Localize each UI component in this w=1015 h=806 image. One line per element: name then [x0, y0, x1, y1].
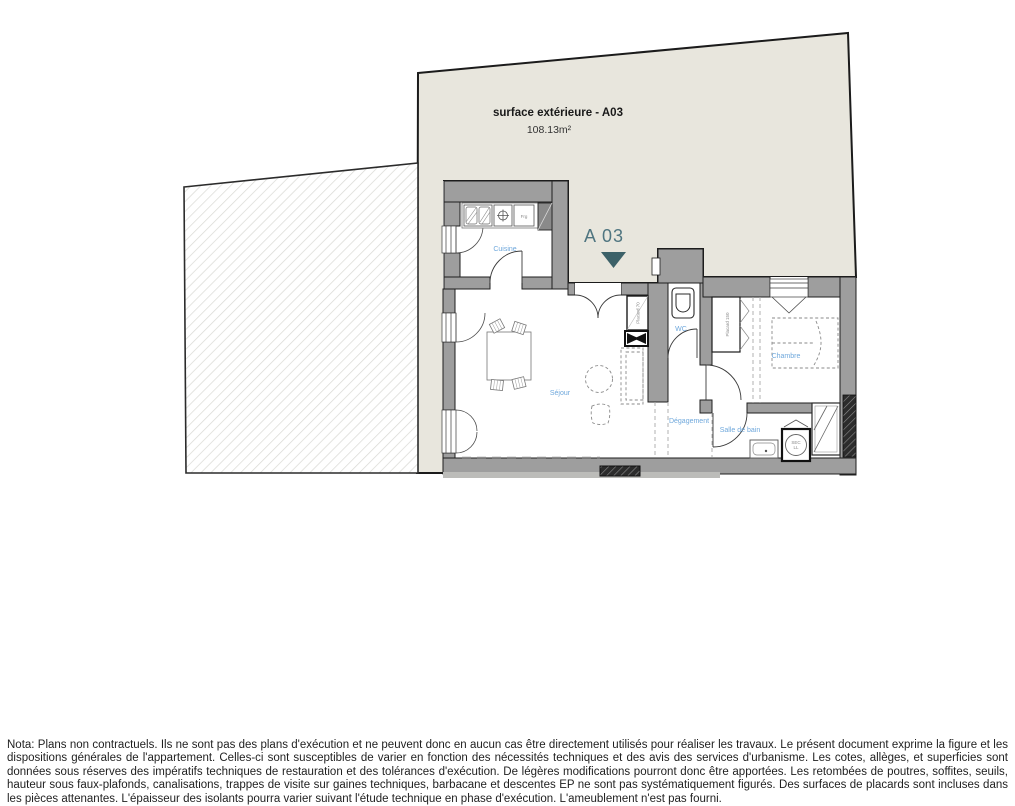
room-label-chambre: Chambre — [772, 353, 801, 360]
unit-label: A 03 — [584, 226, 624, 246]
washer-label-bottom: LL — [793, 445, 799, 450]
room-label-wc: WC — [675, 326, 687, 333]
shower — [812, 403, 840, 455]
entry-closet-label: Placard 70 — [636, 302, 641, 324]
hatched-parcel — [184, 163, 418, 473]
exterior-surface-value: 108.13m² — [527, 124, 572, 136]
party-wall-hatch — [843, 395, 856, 457]
bathroom-sink — [750, 440, 778, 458]
room-label-degagement: Dégagement — [669, 418, 709, 425]
room-label-sejour: Séjour — [550, 390, 571, 397]
exterior-surface-title: surface extérieure - A03 — [493, 107, 623, 119]
stove — [494, 205, 512, 226]
technical-shaft — [625, 331, 648, 346]
room-label-cuisine: Cuisine — [493, 246, 516, 253]
entry-closet: Placard 70 — [627, 296, 648, 330]
fridge: Frg — [514, 205, 534, 226]
kitchen-tall-unit — [538, 203, 552, 230]
nota-text: Nota: Plans non contractuels. Ils ne son… — [7, 739, 1008, 806]
floor-plan: surface extérieure - A03 108.13m² A 03 — [0, 0, 1015, 735]
room-label-salle-de-bain: Salle de bain — [720, 427, 761, 434]
toilet — [672, 288, 694, 318]
kitchen-sink — [464, 205, 492, 226]
kitchen-counter: Frg — [462, 203, 552, 230]
bedroom-closet-label: Placard 150 — [725, 312, 730, 337]
fridge-label: Frg — [521, 214, 528, 219]
threshold — [600, 466, 640, 476]
